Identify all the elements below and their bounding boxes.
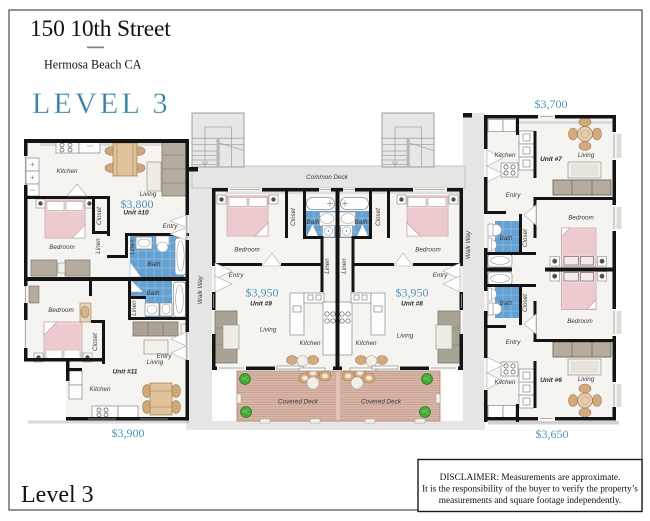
- svg-text:Living: Living: [578, 152, 595, 159]
- svg-text:measurements and square footag: measurements and square footage independ…: [439, 495, 621, 506]
- svg-text:$3,950: $3,950: [246, 286, 279, 300]
- svg-text:Bath: Bath: [147, 290, 160, 297]
- svg-text:LEVEL 3: LEVEL 3: [32, 87, 171, 120]
- svg-text:Unit #8: Unit #8: [401, 301, 423, 308]
- svg-text:DISCLAIMER: Measurements are a: DISCLAIMER: Measurements are approximate…: [440, 473, 621, 483]
- svg-text:150 10th Street: 150 10th Street: [30, 16, 171, 42]
- svg-text:Bedroom: Bedroom: [568, 215, 594, 222]
- svg-text:Closet: Closet: [375, 208, 382, 226]
- svg-text:Entry: Entry: [506, 192, 522, 199]
- svg-text:$3,700: $3,700: [535, 97, 568, 111]
- svg-text:Bath: Bath: [355, 219, 368, 226]
- svg-text:Kitchen: Kitchen: [355, 340, 377, 347]
- svg-text:Covered Deck: Covered Deck: [361, 399, 402, 406]
- svg-text:Living: Living: [147, 359, 164, 366]
- svg-text:Kitchen: Kitchen: [494, 379, 516, 386]
- svg-text:Entry: Entry: [433, 272, 449, 279]
- svg-text:Closet: Closet: [96, 207, 103, 225]
- svg-text:Unit #7: Unit #7: [540, 156, 562, 163]
- svg-text:Unit #10: Unit #10: [123, 210, 149, 217]
- svg-text:Hermosa Beach CA: Hermosa Beach CA: [44, 58, 142, 72]
- svg-text:Linen: Linen: [341, 258, 348, 274]
- svg-text:Closet: Closet: [92, 333, 99, 351]
- svg-text:Bath: Bath: [500, 235, 513, 242]
- svg-text:Linen: Linen: [95, 238, 102, 254]
- svg-text:$3,900: $3,900: [112, 426, 145, 440]
- svg-text:$3,650: $3,650: [536, 427, 569, 441]
- svg-text:Linen: Linen: [131, 300, 138, 316]
- svg-text:Living: Living: [578, 376, 595, 383]
- svg-text:Level 3: Level 3: [21, 482, 94, 508]
- svg-text:Entry: Entry: [157, 353, 173, 360]
- svg-text:Common Deck: Common Deck: [306, 174, 348, 181]
- svg-text:Closet: Closet: [522, 229, 529, 247]
- svg-text:Unit #6: Unit #6: [540, 377, 562, 384]
- svg-text:Walk Way: Walk Way: [465, 230, 472, 259]
- svg-text:Kitchen: Kitchen: [299, 340, 321, 347]
- svg-text:Entry: Entry: [229, 272, 245, 279]
- svg-text:Linen: Linen: [324, 258, 331, 274]
- svg-text:Bath: Bath: [307, 219, 320, 226]
- svg-text:Bath: Bath: [148, 261, 161, 268]
- svg-text:Entry: Entry: [506, 339, 522, 346]
- svg-text:Linen: Linen: [129, 239, 136, 255]
- svg-text:$3,950: $3,950: [396, 286, 429, 300]
- svg-text:Closet: Closet: [290, 208, 297, 226]
- svg-text:Bedroom: Bedroom: [49, 244, 75, 251]
- svg-text:Bath: Bath: [500, 300, 513, 307]
- svg-text:Closet: Closet: [522, 294, 529, 312]
- svg-text:Kitchen: Kitchen: [56, 168, 78, 175]
- svg-text:Bedroom: Bedroom: [234, 247, 260, 254]
- svg-text:Covered Deck: Covered Deck: [278, 399, 319, 406]
- svg-text:Entry: Entry: [163, 223, 179, 230]
- svg-text:Unit #9: Unit #9: [250, 301, 272, 308]
- svg-text:Kitchen: Kitchen: [89, 386, 111, 393]
- svg-text:Living: Living: [397, 333, 414, 340]
- svg-text:Unit #11: Unit #11: [113, 369, 138, 376]
- svg-text:Walk Way: Walk Way: [197, 275, 204, 304]
- svg-text:Kitchen: Kitchen: [494, 152, 516, 159]
- svg-text:It is the responsibility of th: It is the responsibility of the buyer to…: [422, 484, 638, 495]
- svg-text:Bedroom: Bedroom: [415, 247, 441, 254]
- svg-text:Bedroom: Bedroom: [567, 318, 593, 325]
- svg-text:Living: Living: [260, 327, 277, 334]
- svg-text:Bedroom: Bedroom: [48, 307, 74, 314]
